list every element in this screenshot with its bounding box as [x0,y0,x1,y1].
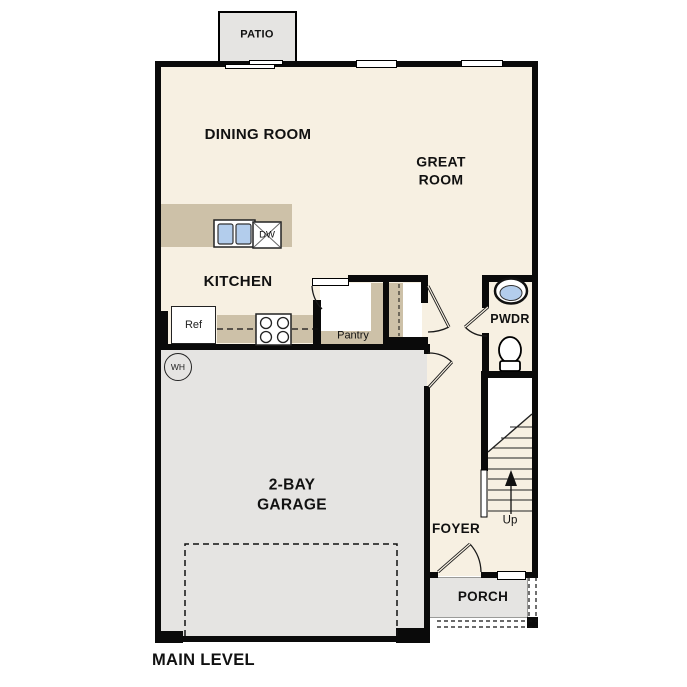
patio-label: PATIO [240,28,273,43]
kitchen-label: KITCHEN [204,272,273,292]
window-kitchen [356,60,397,68]
window-great-room [461,60,503,67]
wall-left [155,61,161,643]
pantry-left-wall [313,300,321,346]
closet-right-stub [421,275,428,303]
foyer-bottom-wall-1 [424,572,438,578]
great-room-label: GREAT ROOM [416,153,465,190]
garage-right-wall-upper [424,344,430,354]
porch-label: PORCH [458,588,508,606]
closet-bottom-wall [383,337,428,345]
garage-corner-left [155,631,183,643]
foyer-label: FOYER [432,520,480,538]
garage-label: 2-BAY GARAGE [257,476,327,517]
garage-corner-right [396,628,430,643]
pantry-door-leaf [312,278,349,286]
water-heater: WH [164,353,192,381]
dishwasher-label: DW [259,230,275,243]
powder-top-wall [482,275,538,282]
coat-closet-shelf [388,283,403,338]
powder-room-label: PWDR [490,311,529,328]
powder-stair-divider [482,371,538,378]
garage-bottom-wall [161,636,401,642]
foyer-bottom-wall-2 [481,572,498,578]
garage-right-wall [424,386,430,643]
wall-right [532,61,538,578]
refrigerator-label: Ref [185,319,202,331]
refrigerator: Ref [171,306,216,344]
closet-floor [403,283,422,338]
pantry-label: Pantry [337,329,369,344]
porch-post [527,617,538,628]
kitchen-counter [217,315,318,343]
powder-left-wall-upper [482,275,489,308]
sliding-door-panel-right [249,60,283,65]
stairs-up-label: Up [503,513,518,528]
window-foyer [497,571,526,580]
plan-title: MAIN LEVEL [152,650,255,672]
floor-plan: Ref WH [0,0,687,687]
pantry-shelf-side [371,283,383,333]
wall-left-chase [155,311,168,345]
pantry-right-wall [383,277,389,345]
water-heater-label: WH [171,362,185,372]
powder-left-wall-lower [482,333,489,373]
dining-room-label: DINING ROOM [205,125,312,145]
stair-left-wall [481,371,488,471]
